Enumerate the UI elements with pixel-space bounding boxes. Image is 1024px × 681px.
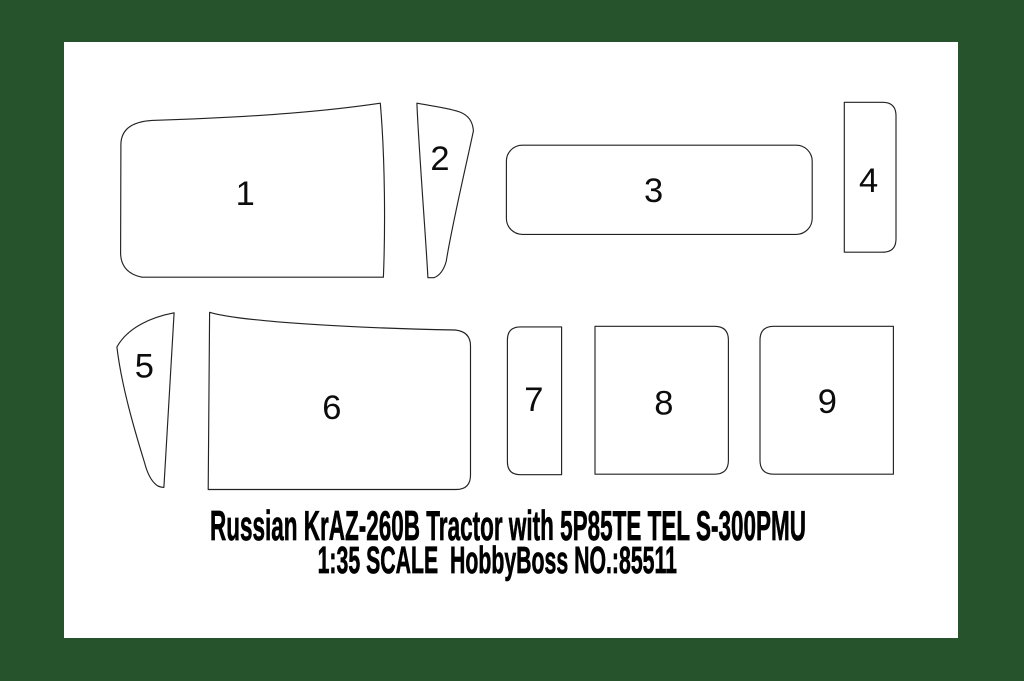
svg-text:8: 8 [654, 384, 673, 422]
svg-text:9: 9 [818, 383, 837, 421]
svg-text:5: 5 [135, 347, 154, 385]
svg-text:7: 7 [524, 381, 543, 419]
svg-text:4: 4 [859, 162, 878, 200]
svg-text:6: 6 [322, 389, 341, 427]
svg-text:1: 1 [236, 175, 255, 213]
svg-text:3: 3 [644, 172, 663, 210]
svg-text:1:35 SCALE HobbyBoss NO.:8551: 1:35 SCALE HobbyBoss NO.:85511 [318, 540, 677, 582]
svg-text:2: 2 [430, 140, 449, 178]
